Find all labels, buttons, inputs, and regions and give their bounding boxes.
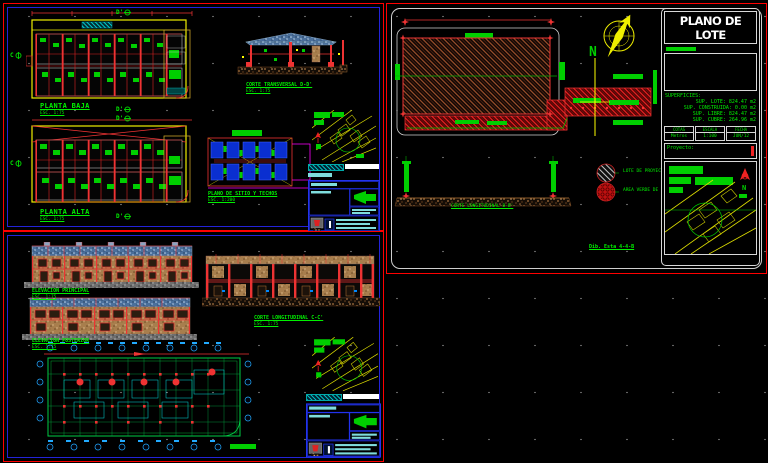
corte-transversal-label: CORTE TRANSVERSAL D-D' — [246, 83, 312, 88]
white-bar — [345, 164, 379, 169]
section-cut-icon — [124, 106, 131, 113]
elevacion-principal-label: ELEVACION PRINCIPAL — [32, 289, 89, 294]
title-block-small — [306, 403, 381, 458]
elevacion-principal-scale: ESC. 1:75 — [32, 296, 56, 301]
superficie-cubre: SUP. CUBRE: 264.96 m2 — [665, 117, 756, 123]
compass-icon: N — [587, 10, 645, 62]
planta-alta-scale: ESC. 1:75 — [40, 218, 64, 223]
viewport-plantas[interactable]: PLANTA BAJA ESC. 1:75 PLANTA ALTA ESC. 1… — [3, 3, 384, 231]
section-marker-c1: C — [10, 52, 22, 59]
titlebar-strip — [306, 394, 379, 401]
viewport-plano-lote[interactable]: N CORTE LONGITUDINAL B-B' LOTE DE PROYEC… — [386, 3, 767, 274]
corte-longitudinal-c-label: CORTE LONGITUDINAL C-C' — [254, 316, 323, 321]
info-fecha-value: JUN/12 — [727, 133, 755, 140]
sheet-number-icon — [325, 219, 334, 230]
white-bar — [343, 394, 379, 399]
planta-baja-scale: ESC. 1:75 — [40, 112, 64, 117]
section-cut-icon — [124, 115, 131, 122]
cad-sheet-canvas: PLANTA BAJA ESC. 1:75 PLANTA ALTA ESC. 1… — [0, 0, 768, 463]
sheet-title: PLANO DE LOTE — [664, 11, 757, 44]
info-fecha: FECHA JUN/12 — [726, 126, 756, 141]
red-mark — [751, 146, 754, 156]
proyecto-label: Proyecto: — [667, 145, 694, 151]
proyecto-box: Proyecto: — [664, 143, 757, 159]
plano-sitio-scale: ESC. 1:200 — [208, 199, 235, 204]
elevacion-principal-drawing — [24, 242, 199, 292]
legend-area-verde-icon — [597, 183, 615, 201]
corte-transversal-scale: ESC. 1:75 — [246, 90, 270, 95]
section-marker-d3: D' — [116, 115, 131, 122]
corte-longitudinal-b-label: CORTE LONGITUDINAL B-B' — [451, 205, 513, 210]
elevacion-posterior-scale: ESC. 1:75 — [32, 346, 56, 351]
green-bar — [666, 47, 696, 51]
planta-alta-drawing — [26, 118, 198, 208]
legend-symbols — [595, 162, 619, 208]
elevacion-posterior-label: ELEVACION POSTERIOR — [32, 339, 89, 344]
info-row: COTAS Metros ESCALA 1:100 FECHA JUN/12 — [664, 126, 757, 141]
corte-longitudinal-c-drawing — [202, 254, 380, 312]
hatch-bar — [308, 164, 344, 171]
superficies-block: SUPERFICIES: SUP. LOTE: 824.47 m2 SUP. C… — [664, 91, 757, 124]
cimentacion-plan-drawing — [34, 340, 259, 452]
titlebar-strip — [308, 164, 379, 171]
corte-longitudinal-c-scale: ESC. 1:75 — [254, 323, 278, 328]
viewport-elevaciones[interactable]: ELEVACION PRINCIPAL ESC. 1:75 ELEVACION … — [3, 231, 384, 462]
section-marker-d2: D' — [116, 106, 131, 113]
plano-sitio-label: PLANO DE SITIO Y TECHOS — [208, 192, 277, 197]
info-escala: ESCALA 1:100 — [695, 126, 725, 141]
corte-transversal-drawing — [234, 26, 349, 81]
legend-lote-icon — [597, 164, 615, 182]
croquis-localizacion-map — [312, 336, 378, 392]
compass-letter: N — [589, 45, 597, 60]
section-cut-icon — [124, 213, 131, 220]
info-cotas: COTAS Metros — [664, 126, 694, 141]
croquis-localizacion-map — [312, 110, 376, 162]
planta-baja-drawing — [26, 10, 198, 106]
cyan-label-bar — [308, 173, 332, 177]
plano-sitio-techos-drawing — [206, 130, 314, 190]
planta-baja-label: PLANTA BAJA — [40, 103, 90, 110]
map-north-letter: N — [742, 184, 746, 192]
planta-alta-label: PLANTA ALTA — [40, 209, 90, 216]
section-marker-d1: D' — [116, 9, 131, 16]
section-marker-c2: C — [10, 160, 22, 167]
north-arrow-icon — [315, 360, 321, 378]
section-marker-d4: D' — [116, 213, 131, 220]
elevacion-posterior-drawing — [22, 296, 197, 344]
owner-box — [664, 53, 757, 91]
section-cut-icon — [15, 160, 22, 167]
north-arrow-icon — [315, 132, 321, 149]
hatch-bar — [306, 394, 342, 401]
sheet-number-icon — [324, 444, 333, 455]
sheet-note: Dib. Esta 4-4-B — [589, 245, 634, 250]
section-cut-icon — [15, 52, 22, 59]
title-block-small — [308, 180, 380, 232]
plano-lote-title-block: PLANO DE LOTE SUPERFICIES: SUP. LOTE: 82… — [661, 8, 760, 266]
section-cut-icon — [124, 9, 131, 16]
dimension-marker-icon — [401, 18, 555, 26]
legend-label-1: LOTE DE PROYECTO — [623, 170, 666, 175]
info-escala-value: 1:100 — [696, 133, 724, 140]
ubicacion-map: N — [664, 161, 757, 255]
info-cotas-value: Metros — [665, 133, 693, 140]
